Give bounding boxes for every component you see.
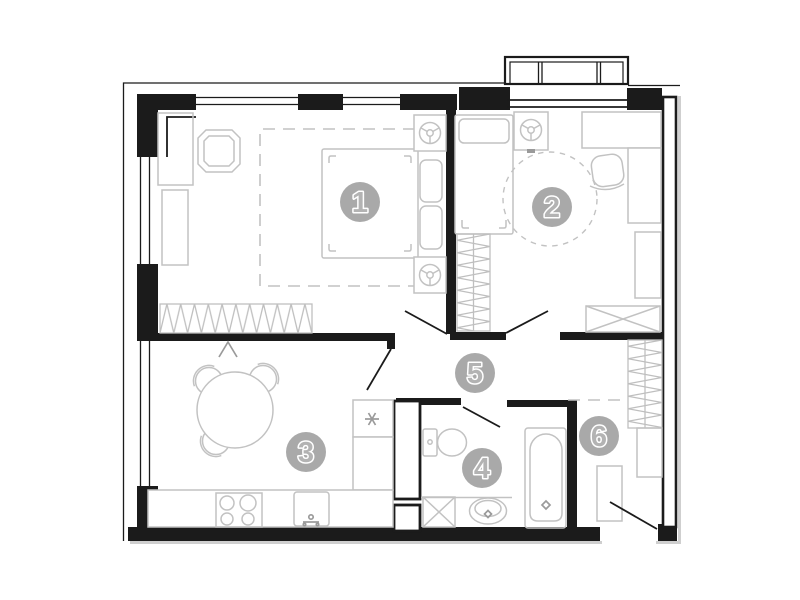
nightstand-lamp-icon [414,115,446,151]
balcony-door-band [507,100,627,107]
duct-shaft-b [394,505,420,531]
room-3-furniture [148,342,393,527]
wardrobe-hatched-icon [160,304,312,333]
corner-detail [167,117,196,157]
room-2-number: 2 [544,192,560,224]
balcony-bay [505,57,628,84]
closet-icon [158,113,193,185]
room-6-number: 6 [591,421,607,453]
nightstand-lamp-icon [414,257,446,293]
floor-plan-drawing: 123456 [0,0,800,600]
desk-icon [582,112,661,223]
drain-mark [542,501,550,509]
room-4-number: 4 [474,453,490,485]
armchair-icon [198,130,240,172]
wardrobe-hatched-icon [457,234,490,331]
door-room3 [367,349,391,390]
wall-bath-room6 [567,400,577,528]
shoe-cabinet-icon [597,466,622,521]
dresser-icon [162,190,188,265]
bathroom-sink-icon [470,498,507,524]
room-1-number: 1 [352,187,368,219]
wall-room1-room3 [145,333,395,341]
single-bed-icon [455,115,513,234]
window-top-room1-a [196,98,298,105]
room-1-furniture [158,113,446,333]
wall-room2-room6 [560,332,662,340]
room-3-number: 3 [298,437,314,469]
cabinet-icon [637,428,662,477]
window-top-room1-b [343,98,400,105]
duct-shaft-a [394,401,420,499]
double-bed-icon [322,149,442,258]
pillow-icon [420,206,442,249]
wall-stub [387,341,395,349]
hanger-mark [219,342,237,357]
door-room1 [405,311,447,334]
wall-bath-top-right [507,400,577,407]
right-wall [663,97,676,527]
wardrobe-hatched-icon [628,340,662,428]
round-table-icon [197,372,273,448]
door-room2 [506,311,548,333]
nightstand-lamp-icon [514,112,548,153]
desk-chair-icon [590,153,625,190]
bookshelf-icon [635,232,661,298]
toilet-icon [423,429,467,456]
handle [527,149,535,153]
window-left-room1 [141,157,150,264]
room-5-number: 5 [467,358,483,390]
wall-hall-cap [450,332,506,340]
door-entry [610,502,657,529]
washing-machine-icon [423,497,455,527]
floor-plan: 123456 [0,0,800,600]
bathtub-icon [525,428,566,528]
pillow-icon [420,160,442,202]
wardrobe-crossed-icon [586,306,660,332]
door-bathroom [463,407,500,427]
window-left-room3 [141,341,150,486]
